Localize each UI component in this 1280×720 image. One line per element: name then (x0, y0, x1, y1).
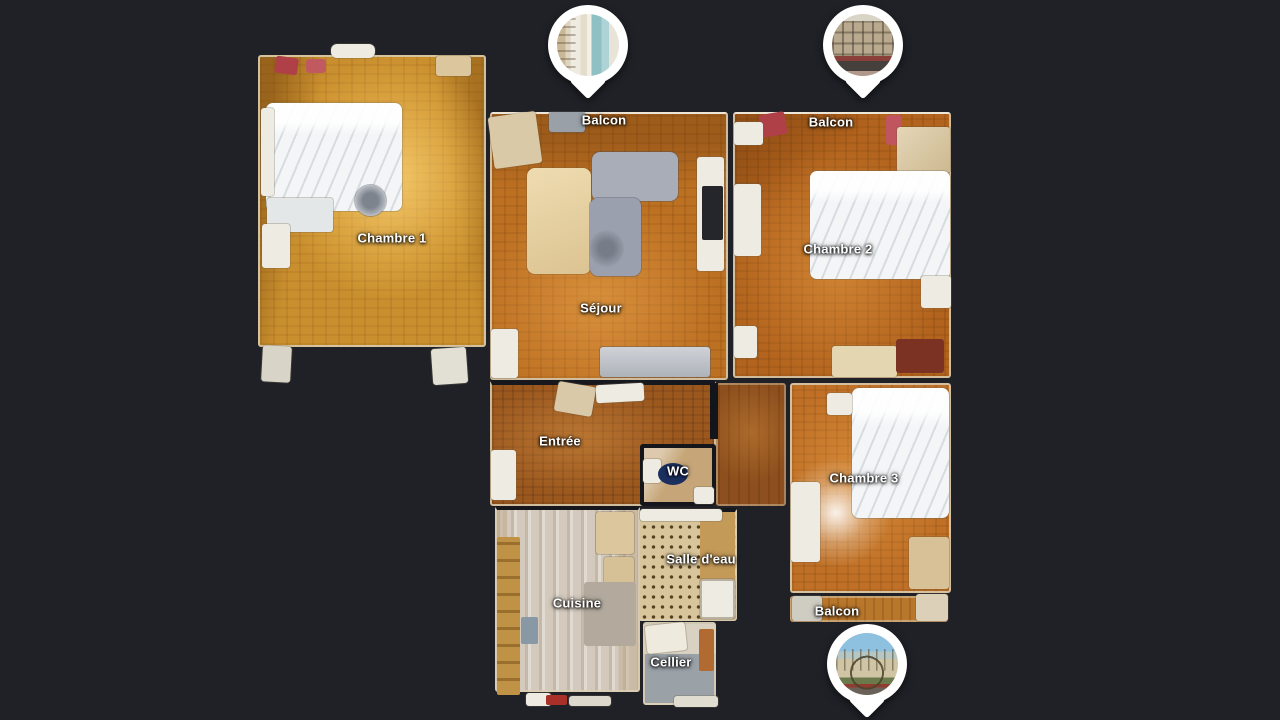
wardrobe-chambre-3 (909, 537, 949, 589)
sofa-pouf (589, 230, 624, 267)
red-mat (546, 695, 567, 705)
room-label-cuisine: Cuisine (553, 596, 601, 611)
vanity-salle-deau (640, 509, 722, 521)
wall-stub-hall (710, 383, 718, 439)
room-label-sejour: Séjour (580, 301, 622, 316)
nightstand-chambre-2 (921, 276, 951, 308)
photo-pin-bottom-right[interactable] (825, 624, 909, 713)
room-label-chambre-3: Chambre 3 (830, 471, 899, 486)
desk-chambre-2 (897, 127, 950, 173)
shower-tray (700, 579, 735, 619)
shutter-stub-left (261, 345, 292, 382)
conservatory-photo-icon (836, 633, 898, 695)
threshold-c (674, 696, 718, 707)
debris-entree (554, 381, 597, 417)
radiator-chambre-2-c (734, 326, 757, 358)
debris-sejour-top-left (488, 111, 543, 169)
room-label-balcon-chambre-2: Balcon (809, 115, 854, 130)
bed-chambre-3 (852, 388, 949, 518)
radiator-chambre-1 (261, 108, 274, 196)
cabinet-chambre-3 (791, 482, 820, 562)
room-hallway[interactable] (716, 383, 786, 506)
door-entree-left (491, 450, 516, 500)
photo-pin-top-left[interactable] (546, 5, 630, 94)
balcony-debris-right (916, 594, 948, 621)
room-label-balcon-chambre-3: Balcon (815, 604, 860, 619)
floorplan-viewer: Chambre 1 Séjour Chambre 2 Chambre 3 Ent… (0, 0, 1280, 720)
dining-table (527, 168, 591, 274)
shelving-cuisine-left (497, 537, 520, 695)
shelf-chambre-1-top-right (436, 56, 471, 76)
window-shutters-photo-icon (557, 14, 619, 76)
pin-bubble (823, 5, 903, 85)
radiator-outside-top (331, 44, 375, 58)
debris-sejour-top (549, 112, 585, 132)
shutter-stub-right (431, 347, 468, 385)
table-chambre-2-bottom (832, 346, 897, 377)
room-label-wc: WC (667, 464, 689, 479)
chest-chambre-2-bottom-right (896, 339, 944, 373)
tv-screen (702, 186, 723, 240)
room-label-chambre-1: Chambre 1 (358, 231, 427, 246)
radiator-chambre-2-b (734, 184, 761, 256)
wc-sink (694, 487, 714, 504)
fridge-cuisine (596, 512, 634, 554)
door-sejour-bottom-left (491, 329, 518, 378)
building-facade-photo-icon (832, 14, 894, 76)
photo-pin-top-right[interactable] (821, 5, 905, 94)
curtain-chambre-1-mid (306, 59, 326, 73)
room-label-balcon-sejour: Balcon (582, 113, 627, 128)
counter-cuisine (584, 582, 636, 646)
room-label-salle-deau: Salle d'eau (666, 552, 736, 567)
bed-chambre-2 (810, 171, 950, 279)
door-leaf-entree (596, 383, 645, 403)
box-cellier (699, 629, 714, 671)
radiator-chambre-2-a (734, 122, 763, 145)
sofa-back (592, 152, 678, 201)
cabinet-chambre-1 (262, 224, 290, 268)
pin-bubble (827, 624, 907, 704)
room-label-cellier: Cellier (650, 655, 691, 670)
shelf-cellier (645, 622, 688, 654)
appliance-cuisine (521, 617, 538, 644)
curtain-chambre-1-left (274, 55, 299, 75)
stool-chambre-1 (355, 185, 386, 216)
threshold-b (569, 696, 611, 706)
pin-bubble (548, 5, 628, 85)
room-label-entree: Entrée (539, 434, 581, 449)
cabinet-cuisine (604, 557, 634, 585)
sideboard-sejour (600, 347, 710, 377)
nightstand-chambre-3 (827, 393, 852, 415)
room-label-chambre-2: Chambre 2 (804, 242, 873, 257)
